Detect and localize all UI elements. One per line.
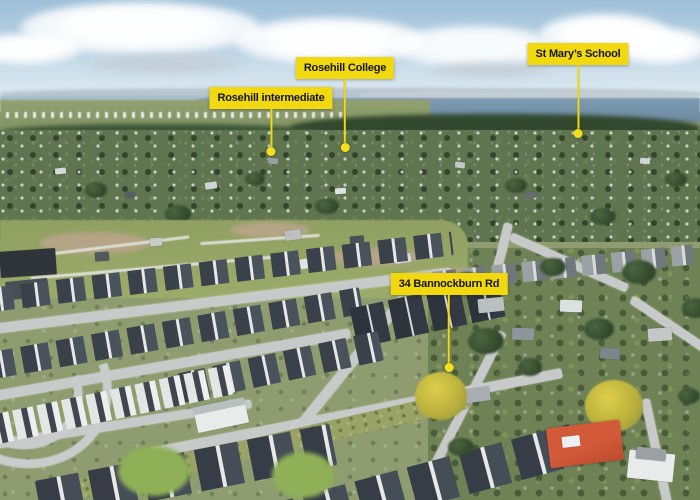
house-block [55,167,67,174]
annotation-rosehill-college: Rosehill College [296,57,394,152]
tree [315,198,339,214]
annotation-label: St Mary’s School [527,43,628,65]
leader-line [270,109,272,147]
location-dot-icon [267,147,276,156]
tree [584,318,614,340]
location-dot-icon [444,363,453,372]
tree [540,258,566,276]
annotation-st-marys-school: St Mary’s School [527,43,628,138]
house-block [455,161,466,168]
house-block [335,188,346,195]
aerial-photo: Rosehill intermediate Rosehill College S… [0,0,700,500]
house-gable [561,435,580,448]
tree [245,172,265,186]
cloud [90,54,240,74]
tree [85,182,107,198]
house-block [150,237,163,246]
house-block [512,327,535,340]
tree [622,260,656,284]
yellow-tree [415,372,467,420]
tree [665,172,687,187]
house-block [640,157,651,164]
house-block [525,192,536,199]
house-block [600,347,621,360]
annotation-label: 34 Bannockburn Rd [391,273,508,295]
house-block [560,300,582,313]
location-dot-icon [341,143,350,152]
lawn [272,452,334,498]
leader-line [448,295,450,363]
location-dot-icon [574,129,583,138]
commercial-building [0,248,57,278]
house-block [95,252,110,262]
lawn [118,446,190,496]
house-block [125,192,135,199]
annotation-label: Rosehill College [296,57,394,79]
tree [518,358,542,376]
annotation-34-bannockburn-rd: 34 Bannockburn Rd [391,273,508,372]
house-block [268,158,278,165]
tree [448,438,474,456]
tree [590,208,616,225]
tree [678,388,700,404]
tree [505,178,527,193]
house-block [648,327,673,342]
leader-line [577,65,579,129]
leader-line [344,79,346,143]
